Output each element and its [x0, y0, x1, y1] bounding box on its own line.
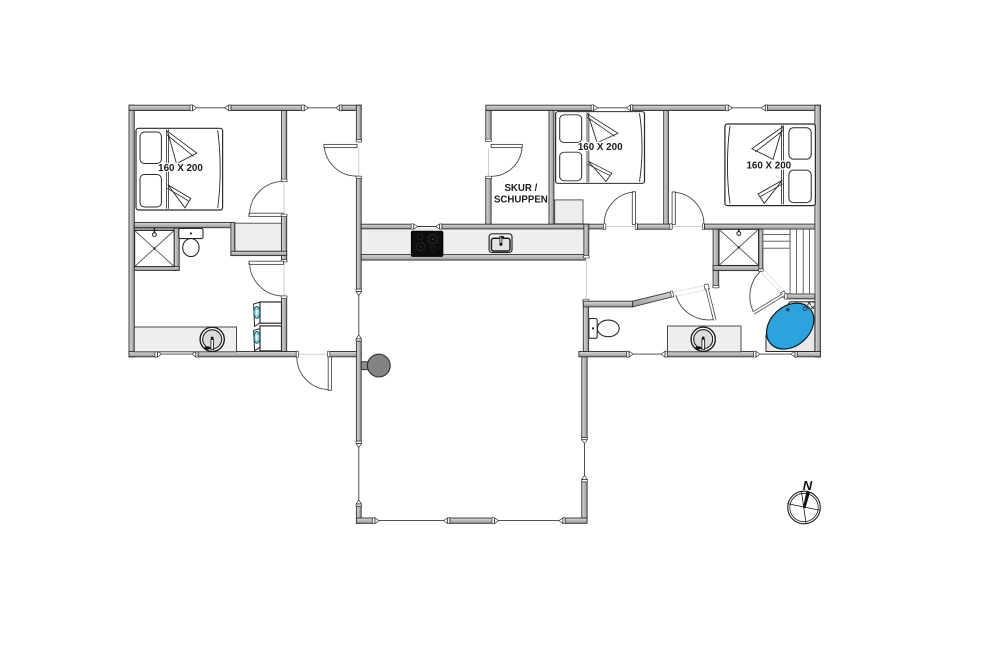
svg-text:SKUR /: SKUR / — [504, 183, 537, 194]
svg-text:160 X 200: 160 X 200 — [746, 160, 791, 171]
svg-text:N: N — [803, 478, 813, 493]
svg-text:160 X 200: 160 X 200 — [158, 163, 203, 174]
svg-text:SCHUPPEN: SCHUPPEN — [494, 194, 548, 205]
svg-text:160 X 200: 160 X 200 — [578, 142, 623, 153]
